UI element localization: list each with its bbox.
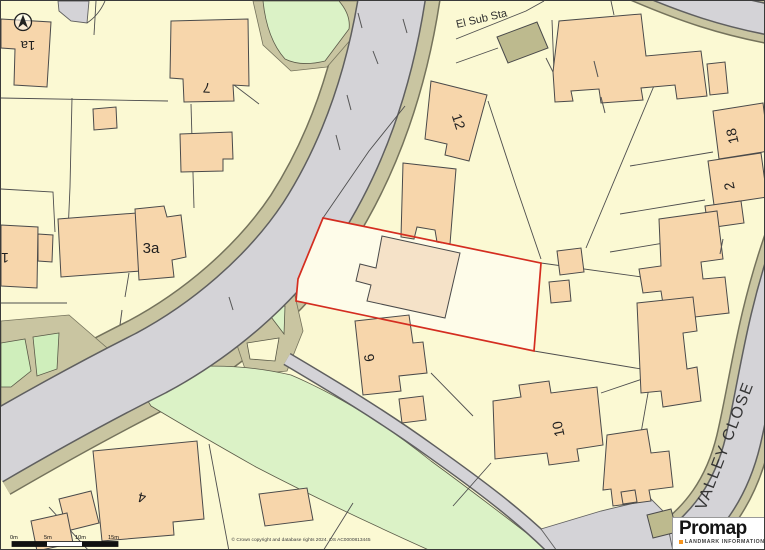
scale-label-10m: 10m bbox=[75, 535, 86, 541]
building-2 bbox=[708, 153, 765, 205]
promap-logo-text: Promap bbox=[679, 519, 765, 539]
plot-label-3a: 3a bbox=[143, 240, 160, 257]
copyright-attribution: © Crown copyright and database rights 20… bbox=[231, 536, 370, 543]
scale-label-5m: 5m bbox=[44, 535, 52, 541]
map-canvas[interactable]: 1a 7 1 3a 12 18 2 6 10 4 El Sub Sta VALL… bbox=[1, 1, 765, 550]
plot-label-1a: 1a bbox=[20, 38, 35, 53]
north-arrow-icon bbox=[15, 14, 32, 31]
scale-label-15m: 15m bbox=[108, 535, 119, 541]
promap-logo-box: Promap LANDMARK INFORMATION bbox=[672, 517, 765, 550]
building-tiny bbox=[621, 490, 637, 504]
plot-label-7: 7 bbox=[202, 80, 211, 96]
landmark-bullet-icon bbox=[679, 540, 683, 544]
building-parallelogram bbox=[259, 488, 313, 526]
building-6-annex bbox=[399, 396, 426, 423]
building-3a bbox=[58, 213, 141, 277]
plot-label-1: 1 bbox=[1, 250, 9, 266]
scale-label-0m: 0m bbox=[10, 535, 18, 541]
map-viewport[interactable]: 1a 7 1 3a 12 18 2 6 10 4 El Sub Sta VALL… bbox=[0, 0, 765, 550]
building-1-annex bbox=[38, 234, 53, 262]
building-cluster-annex bbox=[707, 62, 728, 95]
landmark-tagline: LANDMARK INFORMATION bbox=[685, 539, 765, 545]
building-small-square bbox=[93, 107, 117, 130]
building-sq2 bbox=[557, 248, 584, 275]
building-sq3 bbox=[549, 280, 571, 303]
